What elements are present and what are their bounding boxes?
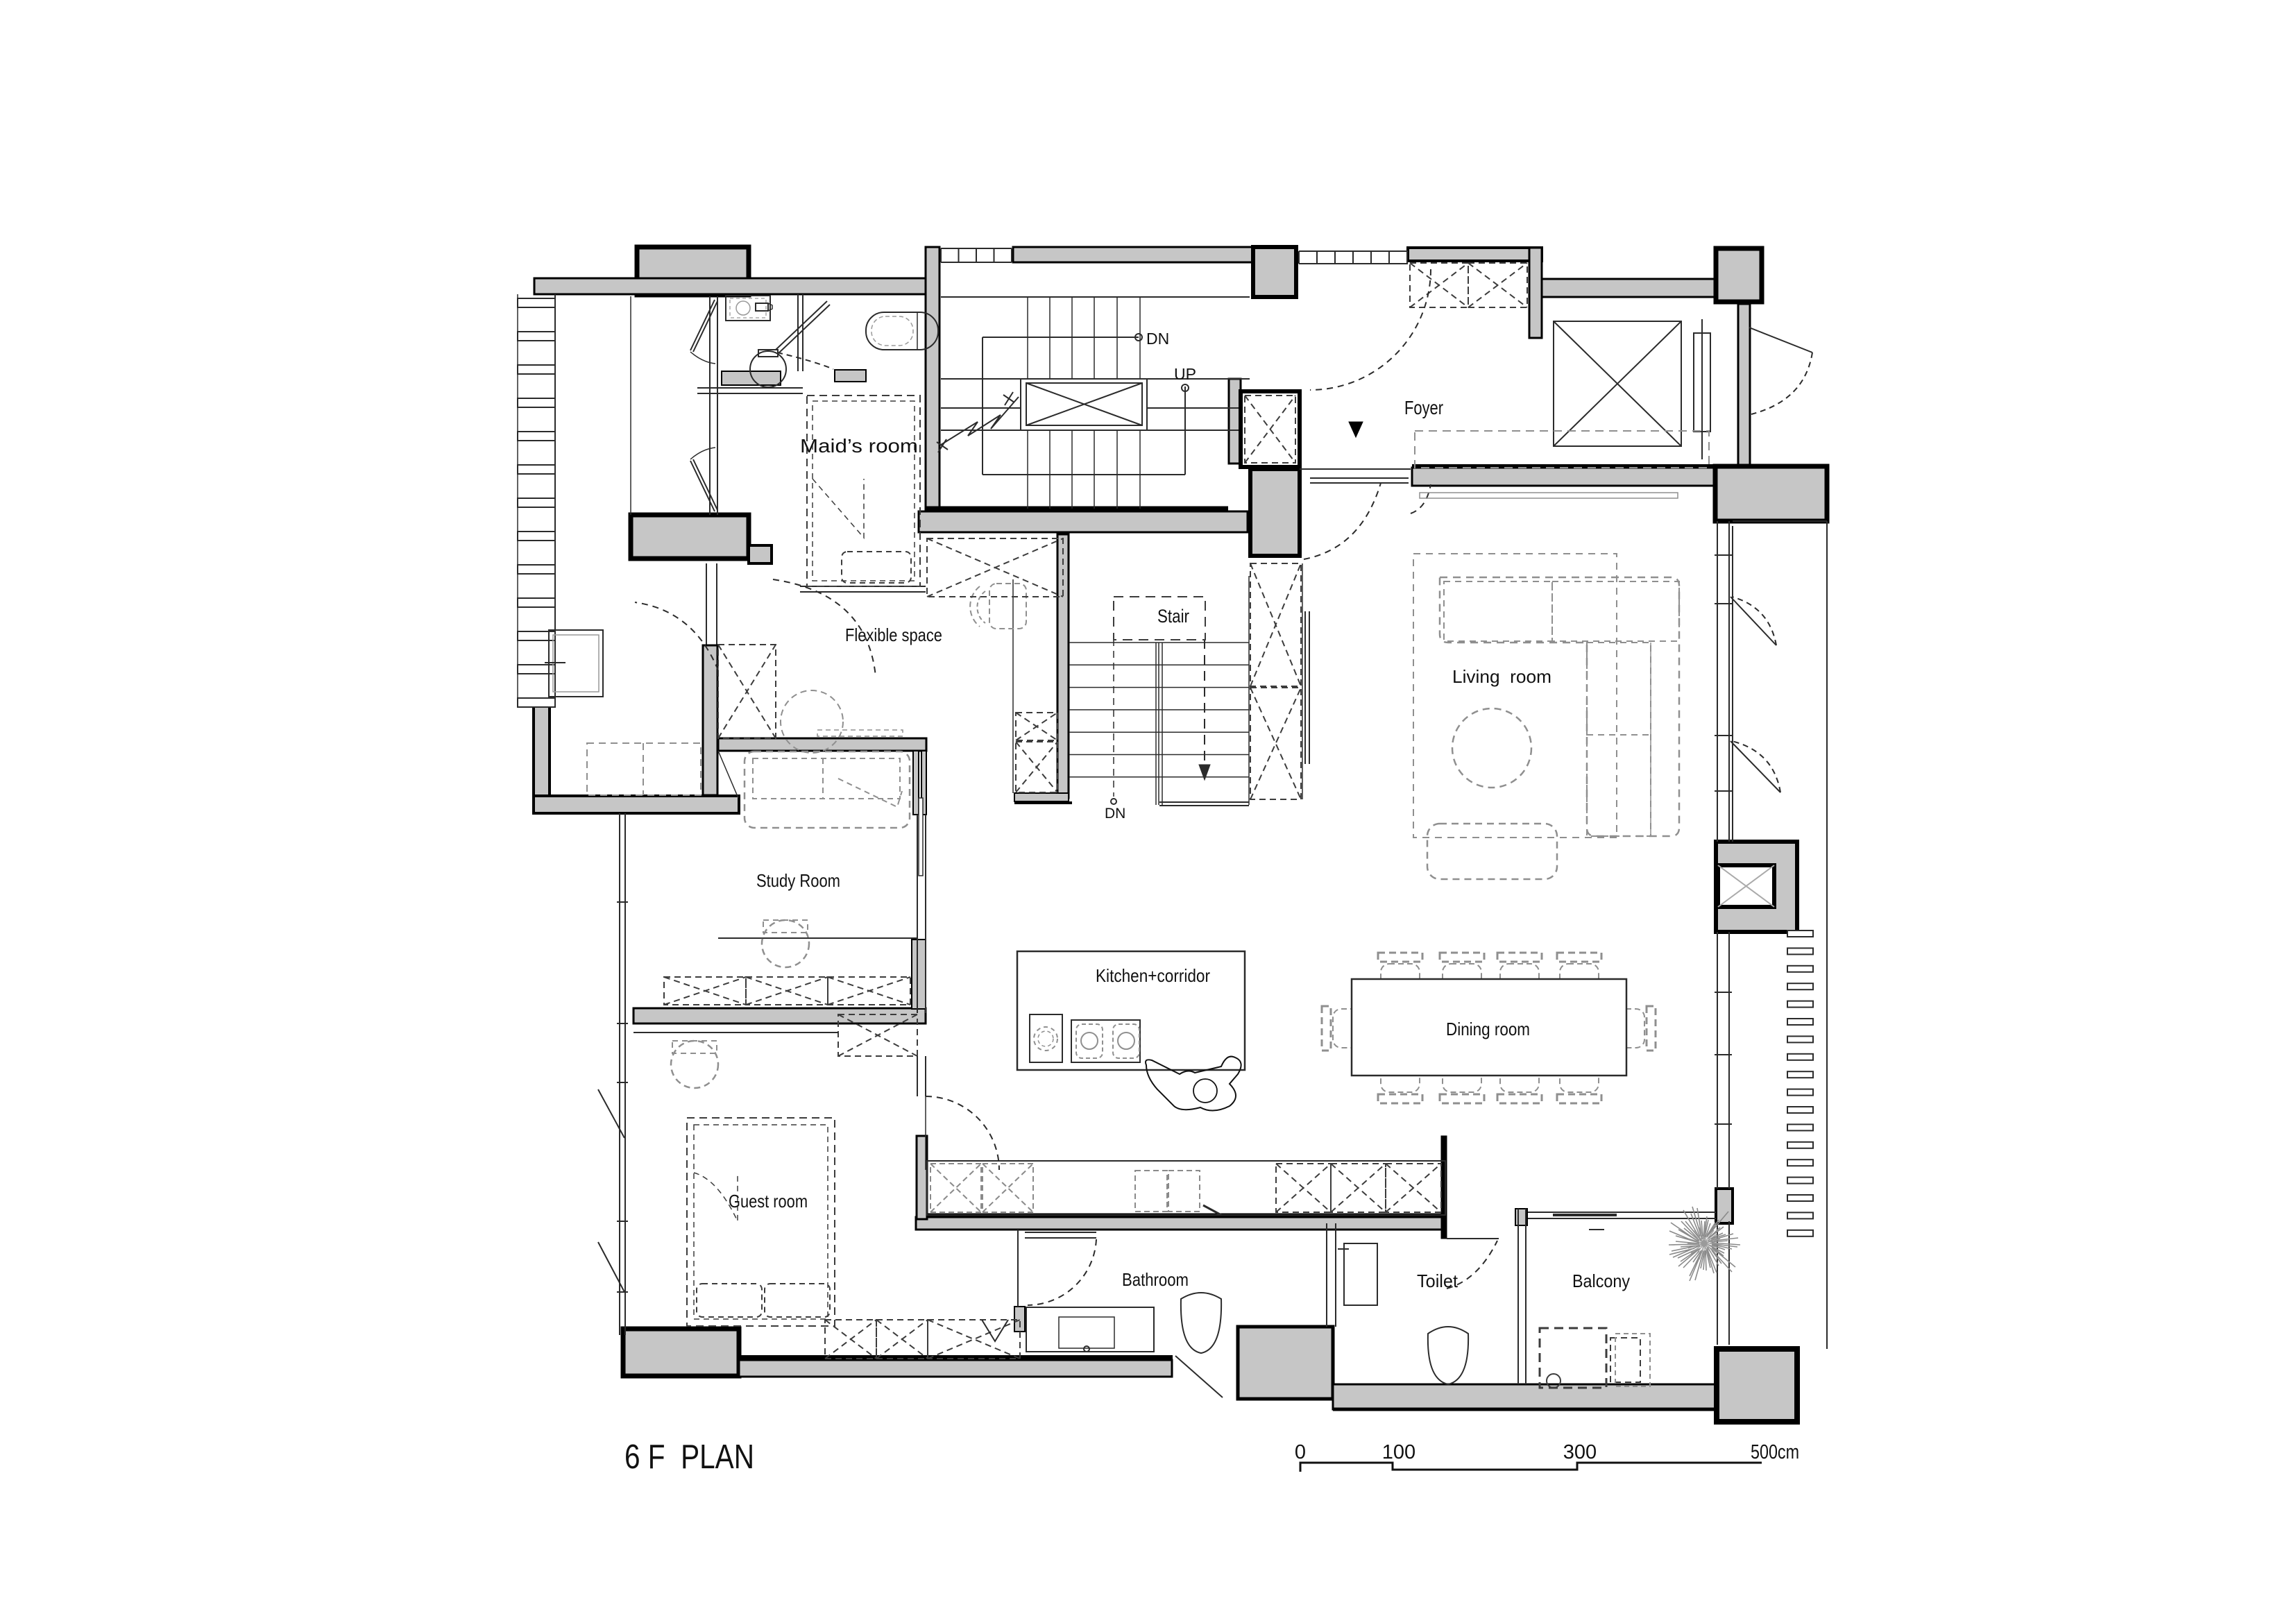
svg-text:Foyer: Foyer	[1404, 397, 1443, 418]
svg-text:Balcony: Balcony	[1572, 1271, 1630, 1291]
svg-text:DN: DN	[1105, 806, 1125, 822]
svg-text:Bathroom: Bathroom	[1122, 1269, 1189, 1290]
svg-text:6 F PLAN: 6 F PLAN	[624, 1438, 754, 1476]
svg-text:Study Room: Study Room	[756, 870, 840, 891]
svg-text:300: 300	[1563, 1441, 1597, 1463]
svg-text:Kitchen+corridor: Kitchen+corridor	[1096, 965, 1210, 986]
svg-text:Maid’s room: Maid’s room	[800, 435, 918, 457]
svg-text:Toilet: Toilet	[1417, 1271, 1459, 1291]
svg-text:Living room: Living room	[1452, 666, 1551, 687]
svg-text:Stair: Stair	[1157, 606, 1189, 627]
svg-text:Dining room: Dining room	[1446, 1019, 1530, 1039]
svg-text:Flexible space: Flexible space	[845, 624, 942, 645]
svg-text:100: 100	[1382, 1441, 1415, 1463]
svg-text:500cm: 500cm	[1751, 1441, 1799, 1463]
svg-text:0: 0	[1295, 1441, 1306, 1463]
svg-text:Guest room: Guest room	[729, 1191, 808, 1212]
svg-text:DN: DN	[1146, 330, 1169, 348]
svg-text:UP: UP	[1174, 365, 1196, 383]
